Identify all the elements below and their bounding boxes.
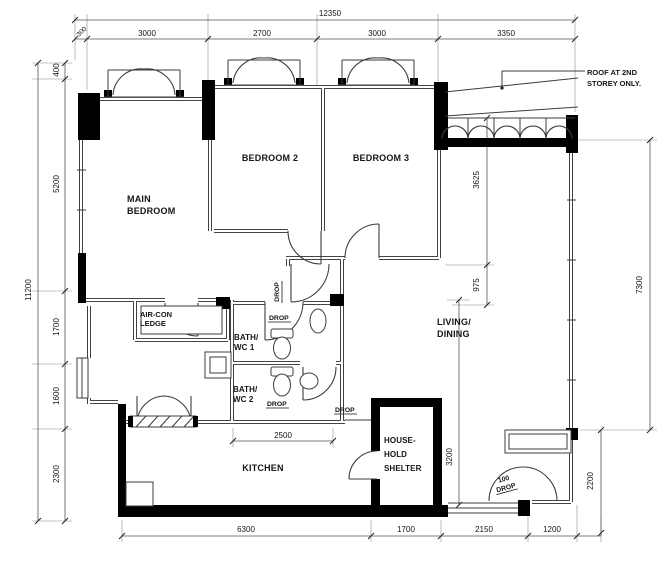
drop-note-vertical: DROP bbox=[274, 281, 282, 303]
dim-left-1700: 1700 bbox=[52, 318, 61, 336]
room-label-bath2-1: BATH/ bbox=[233, 385, 258, 394]
kitchen-recess bbox=[126, 482, 153, 506]
room-label-shelter-1: HOUSE- bbox=[384, 436, 416, 445]
walls-solid bbox=[78, 78, 578, 517]
dim-overall-width: 12350 bbox=[319, 9, 342, 18]
roof-note-1: ROOF AT 2ND bbox=[587, 68, 638, 77]
bedroom3-door-arc bbox=[345, 224, 379, 258]
sink2 bbox=[300, 373, 318, 389]
dim-bath-2500: 2500 bbox=[274, 431, 292, 440]
dim-shelter-3200: 3200 bbox=[445, 448, 454, 466]
room-label-bath1-1: BATH/ bbox=[234, 333, 259, 342]
dim-left-400: 400 bbox=[52, 63, 61, 77]
dim-bottom-6300: 6300 bbox=[237, 525, 255, 534]
dim-top-3000a: 3000 bbox=[138, 29, 156, 38]
dim-bottom-1200: 1200 bbox=[543, 525, 561, 534]
room-label-kitchen: KITCHEN bbox=[242, 463, 283, 473]
room-label-bath1-2: WC 1 bbox=[234, 343, 255, 352]
dim-left-1600: 1600 bbox=[52, 387, 61, 405]
toilet2-bowl bbox=[274, 374, 291, 396]
shoe-cabinet-inner bbox=[509, 434, 567, 449]
drop-note-bath1: DROP bbox=[269, 315, 289, 322]
toilet1-bowl bbox=[274, 337, 291, 359]
room-label-aircon-1: AIR-CON bbox=[140, 310, 172, 319]
sink1 bbox=[310, 309, 326, 333]
dim-right-975: 975 bbox=[472, 278, 481, 292]
dim-overall-height: 11200 bbox=[24, 279, 33, 301]
room-label-aircon-2: LEDGE bbox=[140, 319, 166, 328]
dim-right-2200: 2200 bbox=[586, 472, 595, 490]
bay-window-arcs bbox=[113, 58, 409, 95]
dim-top-3000b: 3000 bbox=[368, 29, 386, 38]
roof-note-2: STOREY ONLY. bbox=[587, 79, 641, 88]
floor-plan-svg: MAIN BEDROOM BEDROOM 2 BEDROOM 3 LIVING/… bbox=[0, 0, 662, 569]
main-bedroom-door-arc bbox=[291, 264, 329, 302]
dim-bottom-2150: 2150 bbox=[475, 525, 493, 534]
room-label-shelter-2: HOLD bbox=[384, 450, 407, 459]
walls-double bbox=[81, 87, 571, 502]
dim-top-300: 300 bbox=[76, 25, 89, 38]
room-label-living-2: DINING bbox=[437, 329, 470, 339]
roof-leader-dot bbox=[500, 86, 503, 89]
room-label-shelter-3: SHELTER bbox=[384, 464, 422, 473]
dim-left-2300: 2300 bbox=[52, 465, 61, 483]
room-label-main-bedroom-2: BEDROOM bbox=[127, 206, 175, 216]
door-swings bbox=[137, 224, 557, 501]
svg-text:100: 100 bbox=[497, 475, 510, 485]
floor-plan: MAIN BEDROOM BEDROOM 2 BEDROOM 3 LIVING/… bbox=[0, 0, 662, 569]
fixtures bbox=[77, 306, 571, 506]
wash-basin-inner bbox=[210, 357, 226, 373]
drop-note-living: DROP bbox=[335, 407, 355, 414]
dim-top-2700: 2700 bbox=[253, 29, 271, 38]
room-label-bedroom3: BEDROOM 3 bbox=[353, 153, 409, 163]
dim-right-3625: 3625 bbox=[472, 171, 481, 189]
balcony-window-arcs bbox=[442, 126, 572, 139]
dim-top-3350: 3350 bbox=[497, 29, 515, 38]
room-label-main-bedroom-1: MAIN bbox=[127, 194, 151, 204]
shelter-door-opening bbox=[369, 451, 382, 479]
room-label-living-1: LIVING/ bbox=[437, 317, 471, 327]
drop-note-bath2: DROP bbox=[267, 401, 287, 408]
room-label-bath2-2: WC 2 bbox=[233, 395, 254, 404]
dim-bottom-1700: 1700 bbox=[397, 525, 415, 534]
drop-note-entrance: 100 DROP bbox=[492, 473, 517, 494]
svg-text:DROP: DROP bbox=[274, 282, 281, 302]
room-label-bedroom2: BEDROOM 2 bbox=[242, 153, 298, 163]
dim-right-7300: 7300 bbox=[635, 276, 644, 294]
dim-left-5200: 5200 bbox=[52, 175, 61, 193]
